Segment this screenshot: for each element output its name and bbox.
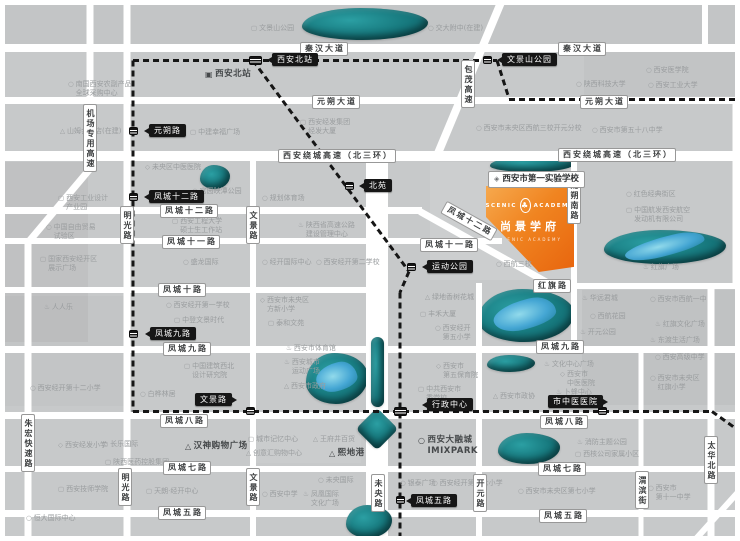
poi-label: ○白桦林居 [140, 390, 176, 400]
road-label: 凤城七路 [538, 462, 586, 476]
poi-label: ○西安经开 第五小学 [435, 324, 471, 343]
poi-text: 西安经开第十七小学 [440, 479, 503, 489]
poi-label-major: ○西安大融城 IMIXPARK [418, 435, 478, 458]
poi-text: 陕西医药控股集团 [113, 458, 169, 468]
poi-icon: ▢ [58, 485, 64, 495]
poi-text: 西安市政协 [500, 392, 535, 402]
poi-text: 西安市未央区 红旗小学 [658, 374, 700, 393]
metro-station-label: 凤城五路 [411, 494, 457, 507]
poi-icon: ○ [496, 260, 502, 270]
poi-text: 陕西省高速公路 建设管理中心 [306, 221, 355, 240]
poi-label: △王府井百货 [313, 435, 355, 445]
road-label: 凤城十一路 [420, 238, 478, 252]
poi-label: ▢丰禾大厦 [420, 310, 456, 320]
poi-label: ▢西安工程大学 硕士生工作站 [172, 217, 222, 236]
poi-text: 西核公司家属小区 [583, 450, 639, 460]
metro-station-marker [129, 127, 138, 135]
road-label: 凤城十二路 [160, 204, 218, 218]
project-logo-row: SCENIC ♣ ACADEMY [486, 198, 574, 213]
metro-station-label: 西安北站 [272, 53, 318, 66]
poi-icon: ▢ [174, 316, 180, 326]
poi-text: 西安大融城 IMIXPARK [427, 435, 478, 458]
poi-label: ○西安高级中学 [655, 353, 705, 363]
poi-icon: ♨ [44, 303, 50, 313]
poi-label: ○西安经开第一学校 [166, 301, 230, 311]
poi-text: 熙地港 [338, 448, 365, 460]
poi-icon: ◇ [145, 163, 150, 173]
poi-text: 南国西安农副产品 全球采购中心 [76, 80, 132, 99]
poi-label: ▢中登文景时代 [174, 316, 224, 326]
road-label: 渭滨街 [635, 471, 649, 509]
road-label: 凤城九路 [536, 340, 584, 354]
poi-label: ◇西安市 第五保育院 [436, 362, 478, 381]
poi-label: ○西安市未央区西航三校开元分校 [476, 124, 582, 134]
poi-text: 创意汇购物中心 [253, 449, 302, 459]
poi-icon: ○ [590, 312, 596, 322]
poi-label: ○红色经典街区 [626, 190, 676, 200]
poi-text: 西安经发小学 [65, 441, 107, 451]
poi-icon: ♨ [284, 358, 290, 377]
poi-icon: ○ [262, 490, 268, 500]
poi-text: 西安市体育馆 [294, 344, 336, 354]
poi-text: 凤凰国际 文化广场 [311, 490, 339, 509]
poi-icon: ♨ [582, 294, 588, 304]
metro-station-label: 市中医医院 [548, 395, 603, 408]
poi-label: ♨华远君城 [582, 294, 618, 304]
poi-label: ♨红旗广场 [643, 263, 679, 273]
poi-icon: ▢ [40, 255, 46, 274]
poi-label: ▢西安技师学院 [58, 485, 108, 495]
poi-icon: ○ [68, 80, 74, 99]
lake-water [491, 292, 560, 336]
poi-icon: ▢ [172, 217, 178, 236]
poi-label: ▢中国建筑西北 设计研究院 [184, 362, 234, 381]
poi-label: ▢中建幸福广场 [190, 128, 240, 138]
poi-icon: ○ [400, 479, 406, 489]
poi-icon: ▢ [58, 194, 64, 213]
poi-label: ○经开国际中心 [262, 258, 312, 268]
poi-icon: ▣ [205, 69, 213, 81]
poi-label: △西安市政府 [284, 382, 326, 392]
poi-icon: ○ [592, 126, 598, 136]
road-label: 朱宏快速路 [21, 414, 35, 472]
school-label: ◈ 西安市第一实验学校 [488, 171, 585, 188]
road [702, 0, 708, 48]
road-label: 文景路 [246, 468, 260, 506]
poi-label-major: △汉神购物广场 [185, 441, 248, 453]
poi-label: ♨凤凰国际 文化广场 [303, 490, 339, 509]
poi-icon: ♨ [303, 490, 309, 509]
poi-text: 中国航发西安航空 发动机有限公司 [634, 206, 690, 225]
poi-icon: ▢ [248, 435, 254, 445]
poi-text: 西安工业设计 产业园 [66, 194, 108, 213]
poi-icon: ○ [140, 390, 146, 400]
park-pill [371, 337, 384, 407]
poi-icon: ○ [428, 24, 434, 34]
road-label: 凤城五路 [158, 506, 206, 520]
poi-text: 中国自由贸易 试验区 [54, 223, 96, 242]
poi-icon: ▢ [190, 128, 196, 138]
poi-text: 西安市 中医医院 [567, 370, 595, 389]
poi-label: ▢城市记忆中心 [248, 435, 298, 445]
poi-icon: ▢ [268, 319, 274, 329]
poi-icon: ♨ [655, 320, 661, 330]
road-label: 明光路 [118, 468, 132, 506]
poi-text: 宫园映潭公园 [200, 187, 242, 197]
poi-icon: ♨ [577, 438, 583, 448]
poi-icon: ▢ [575, 450, 581, 460]
road-label: 包茂高速 [461, 60, 475, 108]
poi-text: 西安医学院 [654, 66, 689, 76]
poi-icon: ▢ [146, 487, 152, 497]
poi-text: 西安市第五十八中学 [600, 126, 663, 136]
poi-text: 城市记忆中心 [256, 435, 298, 445]
poi-icon: ▢ [626, 206, 632, 225]
poi-text: 中建幸福广场 [198, 128, 240, 138]
metro-station-marker [598, 407, 607, 415]
poi-text: 王府井百货 [320, 435, 355, 445]
metro-station-marker [129, 330, 138, 338]
poi-label: ○西安市西航一中 [650, 295, 707, 305]
road-label: 机场专用高速 [83, 104, 97, 172]
poi-text: 西安经开第十二小学 [38, 384, 101, 394]
road-label: 元朔大道 [580, 95, 628, 109]
metro-station-label: 运动公园 [427, 260, 473, 273]
poi-label: ♨东渡生活广场 [650, 336, 700, 346]
road [733, 100, 738, 283]
poi-icon: ○ [646, 66, 652, 76]
poi-label: ○西航花园 [590, 312, 626, 322]
poi-text: 红旗文化广场 [663, 320, 705, 330]
poi-label-major: ▣西安北站 [205, 69, 251, 81]
poi-text: 西安北站 [215, 69, 251, 81]
poi-icon: ◇ [260, 296, 265, 315]
park-pond [498, 433, 560, 464]
road-label: 红旗路 [533, 279, 571, 293]
poi-label: ○西安经开第二学校 [316, 258, 380, 268]
poi-label: ♨陕西省高速公路 建设管理中心 [298, 221, 355, 240]
poi-text: 西安中学 [270, 490, 298, 500]
school-icon: ◈ [494, 176, 499, 183]
poi-label: ♨文化中心广场 [544, 360, 594, 370]
road-label: 秦汉大道 [558, 42, 606, 56]
poi-label: ○西安市 第十一中学 [648, 484, 691, 503]
poi-label-major: △熙地港 [329, 448, 365, 460]
poi-text: 未央国际 [326, 476, 354, 486]
poi-icon: ♨ [650, 336, 656, 346]
poi-label: ○西安经开第十二小学 [30, 384, 101, 394]
poi-icon: ♨ [286, 344, 292, 354]
park-blob [200, 165, 230, 189]
road-label: 元朔大道 [312, 95, 360, 109]
poi-label: ○交大附中(在建) [428, 24, 483, 34]
metro-station-label: 行政中心 [427, 398, 473, 411]
school-name: 西安市第一实验学校 [502, 175, 579, 184]
poi-label: ▢西安工业设计 产业园 [58, 194, 108, 213]
poi-text: 汉神购物广场 [194, 441, 248, 453]
poi-icon: ♨ [643, 263, 649, 273]
poi-icon: ○ [183, 258, 189, 268]
road-label: 凤城五路 [539, 509, 587, 523]
road-label: 开元路 [473, 474, 487, 512]
poi-label: △创意汇购物中心 [246, 449, 302, 459]
poi-label: ○西安市未央区第七小学 [518, 487, 596, 497]
poi-icon: ○ [26, 514, 32, 524]
poi-icon: ▢ [102, 440, 108, 450]
poi-text: 西航三校 [504, 260, 532, 270]
poi-icon: ○ [316, 258, 322, 268]
poi-text: 规划体育场 [270, 194, 305, 204]
metro-station-label: 文景路 [195, 393, 232, 406]
poi-icon: △ [313, 435, 318, 445]
poi-label: ▢西安经发集团 经发大厦 [300, 118, 350, 137]
poi-label: ○西安市未央区 红旗小学 [650, 374, 700, 393]
poi-label: ○恒大国际中心 [26, 514, 76, 524]
metro-station-marker [249, 56, 262, 65]
poi-text: 红旗广场 [651, 263, 679, 273]
poi-label: ○盛龙国际 [183, 258, 219, 268]
poi-label: ▢长乐国际 [102, 440, 138, 450]
metro-station-label: 凤城九路 [150, 327, 196, 340]
poi-icon: ○ [576, 80, 582, 90]
poi-icon: ♨ [580, 328, 586, 338]
poi-label: ◇西安市未央区 方新小学 [260, 296, 309, 315]
poi-label: ▢天朗·经开中心 [146, 487, 198, 497]
poi-icon: ♨ [544, 360, 550, 370]
poi-text: 西安市 第五保育院 [443, 362, 478, 381]
poi-text: 交大附中(在建) [436, 24, 483, 34]
poi-text: 开元公园 [588, 328, 616, 338]
poi-icon: △ [185, 441, 192, 453]
metro-station-marker [129, 193, 138, 201]
metro-station-marker [483, 56, 492, 64]
road-label: 西安绕城高速（北三环） [558, 148, 676, 162]
poi-icon: △ [329, 448, 336, 460]
poi-label: ○西安医学院 [646, 66, 689, 76]
poi-text: 未央区中医医院 [152, 163, 201, 173]
poi-text: 东渡生活广场 [658, 336, 700, 346]
poi-text: 文景山公园 [259, 24, 294, 34]
metro-station-label: 文景山公园 [502, 53, 557, 66]
poi-text: 天朗·经开中心 [154, 487, 198, 497]
poi-label: ▢文景山公园 [251, 24, 294, 34]
poi-label: ○西安中学 [262, 490, 298, 500]
poi-label: ◇未央区中医医院 [145, 163, 201, 173]
poi-text: 银泰广场 [408, 479, 436, 489]
road-label: 西安绕城高速（北三环） [278, 149, 396, 163]
poi-icon: △ [493, 392, 498, 402]
poi-icon: ○ [435, 324, 441, 343]
road-label: 凤城九路 [163, 342, 211, 356]
road-label: 凤城十一路 [162, 235, 220, 249]
poi-text: 西安经发集团 经发大厦 [308, 118, 350, 137]
poi-text: 国家西安经开区 展示广场 [48, 255, 97, 274]
poi-icon: ○ [262, 258, 268, 268]
poi-text: 西安经开 第五小学 [443, 324, 471, 343]
poi-icon: ◇ [560, 370, 565, 389]
poi-text: 西安市未央区第七小学 [526, 487, 596, 497]
poi-icon: ○ [262, 194, 268, 204]
metro-station-marker [396, 496, 405, 504]
poi-text: 西安市西航一中 [658, 295, 707, 305]
poi-text: 长乐国际 [110, 440, 138, 450]
road-label: 文景路 [246, 206, 260, 244]
poi-text: 绿地香树花城 [432, 293, 474, 303]
poi-label: ○中国自由贸易 试验区 [46, 223, 96, 242]
poi-text: 经开国际中心 [270, 258, 312, 268]
poi-text: 红色经典街区 [634, 190, 676, 200]
poi-icon: ○ [46, 223, 52, 242]
poi-icon: ▢ [420, 310, 426, 320]
poi-icon: ○ [650, 374, 656, 393]
poi-text: 泰和文苑 [276, 319, 304, 329]
poi-icon: ○ [476, 124, 482, 134]
poi-label: ○银泰广场 [400, 479, 436, 489]
road-label: 未央路 [371, 474, 385, 512]
poi-label: ♨开元公园 [580, 328, 616, 338]
poi-icon: ○ [318, 476, 324, 486]
poi-text: 西安工程大学 硕士生工作站 [180, 217, 222, 236]
poi-text: 中国建筑西北 设计研究院 [192, 362, 234, 381]
poi-icon: ♨ [298, 221, 304, 240]
poi-label: ○西安市第五十八中学 [592, 126, 663, 136]
project-name-en-left: SCENIC [486, 203, 517, 209]
poi-text: 文化中心广场 [552, 360, 594, 370]
poi-text: 陕西科技大学 [584, 80, 626, 90]
poi-text: 西安市未央区 方新小学 [267, 296, 309, 315]
road-label: 凤城七路 [163, 461, 211, 475]
road-label: 凤城八路 [540, 415, 588, 429]
poi-text: 西安经开第二学校 [324, 258, 380, 268]
poi-icon: ▢ [105, 458, 111, 468]
poi-icon: △ [284, 382, 289, 392]
poi-label: ▢泰和文苑 [268, 319, 304, 329]
poi-text: 西安市 第十一中学 [656, 484, 691, 503]
metro-station-marker [246, 407, 255, 415]
metro-line-2-weiyang [399, 270, 411, 292]
poi-text: 人人乐 [52, 303, 73, 313]
poi-text: 西安城市 运动广场 [292, 358, 320, 377]
poi-text: 白桦林居 [148, 390, 176, 400]
poi-icon: ○ [166, 301, 172, 311]
poi-label: ◇西安经发小学 [58, 441, 107, 451]
poi-text: 华远君城 [590, 294, 618, 304]
road [0, 44, 740, 52]
poi-text: 西安经开第一学校 [174, 301, 230, 311]
poi-text: 西安技师学院 [66, 485, 108, 495]
metro-station-marker [345, 182, 354, 190]
poi-icon: ◇ [58, 441, 63, 451]
poi-icon: △ [246, 449, 251, 459]
poi-icon: ○ [655, 353, 661, 363]
poi-label: ○西安工业大学 [648, 81, 698, 91]
poi-label: ○未央国际 [318, 476, 354, 486]
poi-label: ▢陕西医药控股集团 [105, 458, 169, 468]
poi-icon: ▢ [184, 362, 190, 381]
poi-label: ▢西核公司家属小区 [575, 450, 639, 460]
poi-label: △西安市政协 [493, 392, 535, 402]
poi-label: ♨人人乐 [44, 303, 73, 313]
poi-icon: ◇ [436, 362, 441, 381]
poi-label: ♨红旗文化广场 [655, 320, 705, 330]
poi-icon: ○ [648, 81, 654, 91]
poi-label: ○西航三校 [496, 260, 532, 270]
poi-text: 西安市政府 [291, 382, 326, 392]
road-label: 凤城八路 [160, 414, 208, 428]
metro-station-marker [407, 263, 416, 271]
road-label: 明光路 [120, 206, 134, 244]
metro-line-along-minguang-fengcheng8 [133, 410, 712, 413]
location-map-canvas: SCENIC ♣ ACADEMY 尚景学府 SCENIC ACADEMY ◈ 西… [0, 0, 740, 541]
park-blob [487, 355, 535, 372]
poi-icon: △ [60, 127, 65, 137]
lake-water [622, 227, 705, 265]
project-logo-tree-icon: ♣ [520, 198, 531, 213]
poi-icon: ○ [626, 190, 632, 200]
poi-text: 中登文景时代 [182, 316, 224, 326]
poi-text: 西航花园 [598, 312, 626, 322]
poi-icon: ▢ [300, 118, 306, 137]
poi-text: 恒大国际中心 [34, 514, 76, 524]
poi-text: 消防主题公园 [585, 438, 627, 448]
poi-label: ○西安经开第十七小学 [432, 479, 503, 489]
poi-label: ○南国西安农副产品 全球采购中心 [68, 80, 132, 99]
poi-label: ○陕西科技大学 [576, 80, 626, 90]
road [639, 346, 644, 541]
poi-text: 西安市未央区西航三校开元分校 [484, 124, 582, 134]
poi-label: ♨西安城市 运动广场 [284, 358, 320, 377]
poi-icon: ○ [418, 435, 425, 458]
park-lake [604, 230, 726, 264]
poi-icon: ○ [650, 295, 656, 305]
poi-label: △绿地香树花城 [425, 293, 474, 303]
road-label: 凤城十路 [158, 283, 206, 297]
poi-label: ♨西安市体育馆 [286, 344, 336, 354]
poi-label: ♨消防主题公园 [577, 438, 627, 448]
park-lake [478, 289, 574, 342]
poi-text: 丰禾大厦 [428, 310, 456, 320]
poi-label: ▢中国航发西安航空 发动机有限公司 [626, 206, 690, 225]
poi-text: 西安工业大学 [656, 81, 698, 91]
poi-label: ○规划体育场 [262, 194, 305, 204]
poi-text: 西安高级中学 [663, 353, 705, 363]
metro-station-label: 元朔路 [149, 124, 186, 137]
poi-icon: ○ [518, 487, 524, 497]
metro-station-label: 凤城十二路 [149, 190, 204, 203]
metro-station-label: 北苑 [364, 179, 392, 192]
poi-label: ◇西安市 中医医院 [560, 370, 595, 389]
metro-station-marker [394, 407, 407, 416]
poi-text: 盛龙国际 [191, 258, 219, 268]
poi-icon: △ [425, 293, 430, 303]
road-label: 太华北路 [704, 436, 718, 484]
poi-icon: ▢ [251, 24, 257, 34]
poi-icon: ○ [30, 384, 36, 394]
poi-label: ▢国家西安经开区 展示广场 [40, 255, 97, 274]
